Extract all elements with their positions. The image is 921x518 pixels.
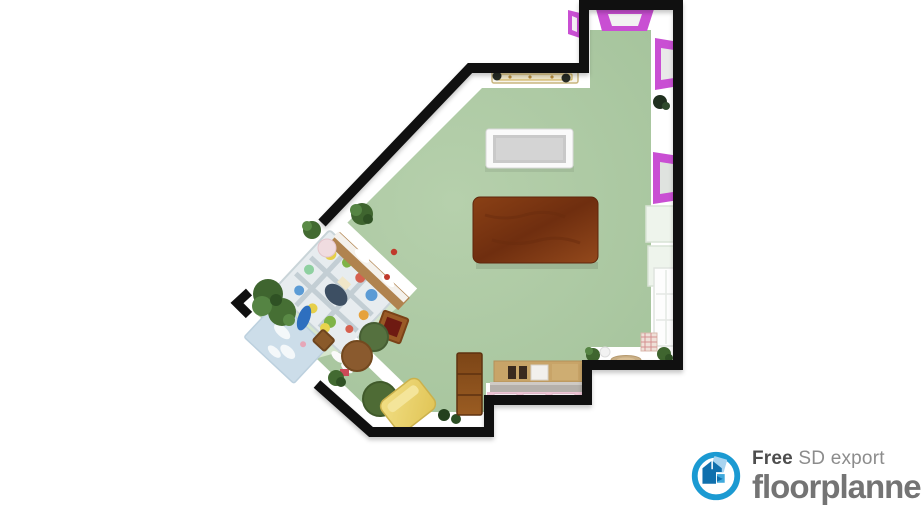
floor-plan-render bbox=[0, 0, 921, 518]
free-label: Free bbox=[752, 448, 793, 469]
plan-label: SD export bbox=[798, 448, 884, 469]
floorplanner-logo bbox=[687, 447, 745, 505]
floorplanner-watermark: Free SD export floorplanner bbox=[687, 447, 921, 505]
storage-box bbox=[641, 333, 657, 351]
pouf-brown bbox=[342, 341, 372, 371]
watermark-line1: Free SD export bbox=[752, 449, 921, 468]
wall-knob-right-icon bbox=[562, 74, 571, 83]
top-window bbox=[596, 9, 654, 31]
white-open-table bbox=[485, 129, 574, 172]
side-window-sliver bbox=[568, 10, 580, 38]
floorplanner-export-canvas: { "app": { "name": "floorplanner", "view… bbox=[0, 0, 921, 518]
tall-wood-cabinet bbox=[457, 353, 482, 415]
brand-name: floorplanner bbox=[752, 470, 921, 503]
white-ornament bbox=[600, 347, 610, 357]
pink-ball bbox=[318, 239, 336, 257]
wood-dining-table bbox=[473, 197, 598, 269]
watermark-text: Free SD export floorplanner bbox=[752, 449, 921, 503]
